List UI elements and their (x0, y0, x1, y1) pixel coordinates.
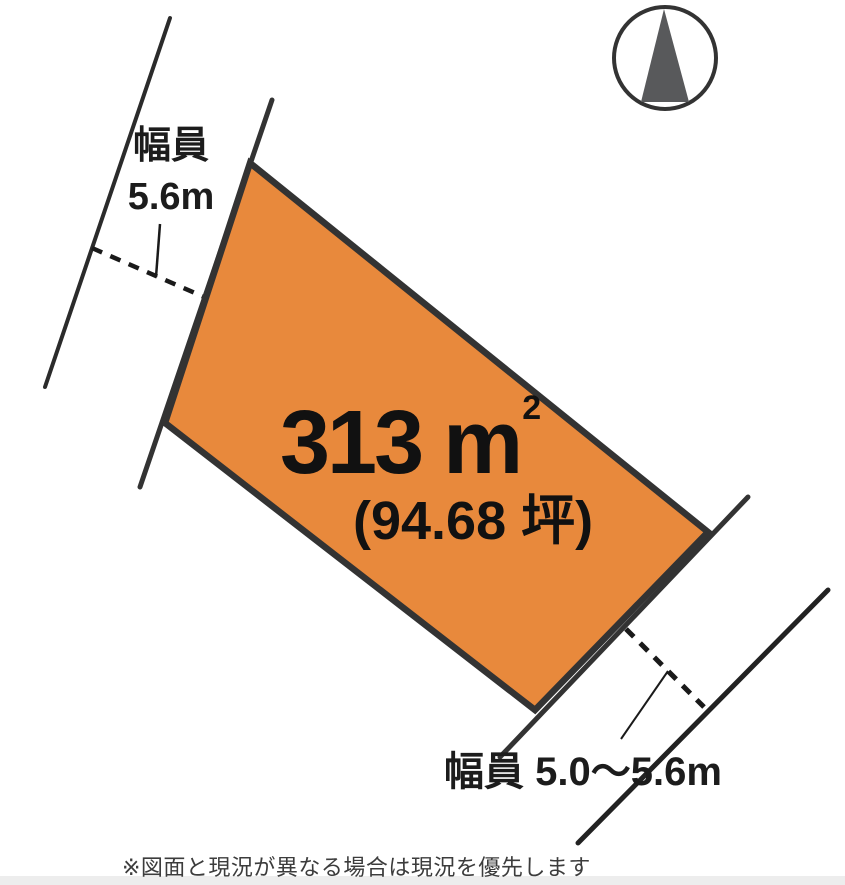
footer-note: ※図面と現況が異なる場合は現況を優先します (122, 850, 591, 882)
road-left-width-label: 幅員 5.6m (112, 121, 230, 223)
road-left-width-dashed-line (92, 248, 204, 297)
road-left-label-leader (156, 224, 160, 277)
parcel-area-superscript: 2 (522, 389, 541, 427)
parcel-area-tsubo: (94.68 坪) (353, 494, 593, 548)
road-left-width-label-line2: 5.6m (112, 172, 230, 223)
north-arrow-icon (614, 7, 716, 109)
road-bottom-width-label: 幅員 5.0～5.6m (444, 752, 722, 792)
road-left-width-label-line1: 幅員 (112, 121, 230, 172)
land-plot-diagram: 幅員 5.6m 313 m2 (94.68 坪) 幅員 5.0～5.6m ※図面… (0, 0, 845, 885)
road-bottom-width-dashed-line (626, 629, 704, 707)
parcel-area-value: 313 m (280, 393, 520, 493)
road-bottom-label-leader (621, 671, 668, 739)
parcel-area-label: 313 m2 (280, 398, 539, 488)
